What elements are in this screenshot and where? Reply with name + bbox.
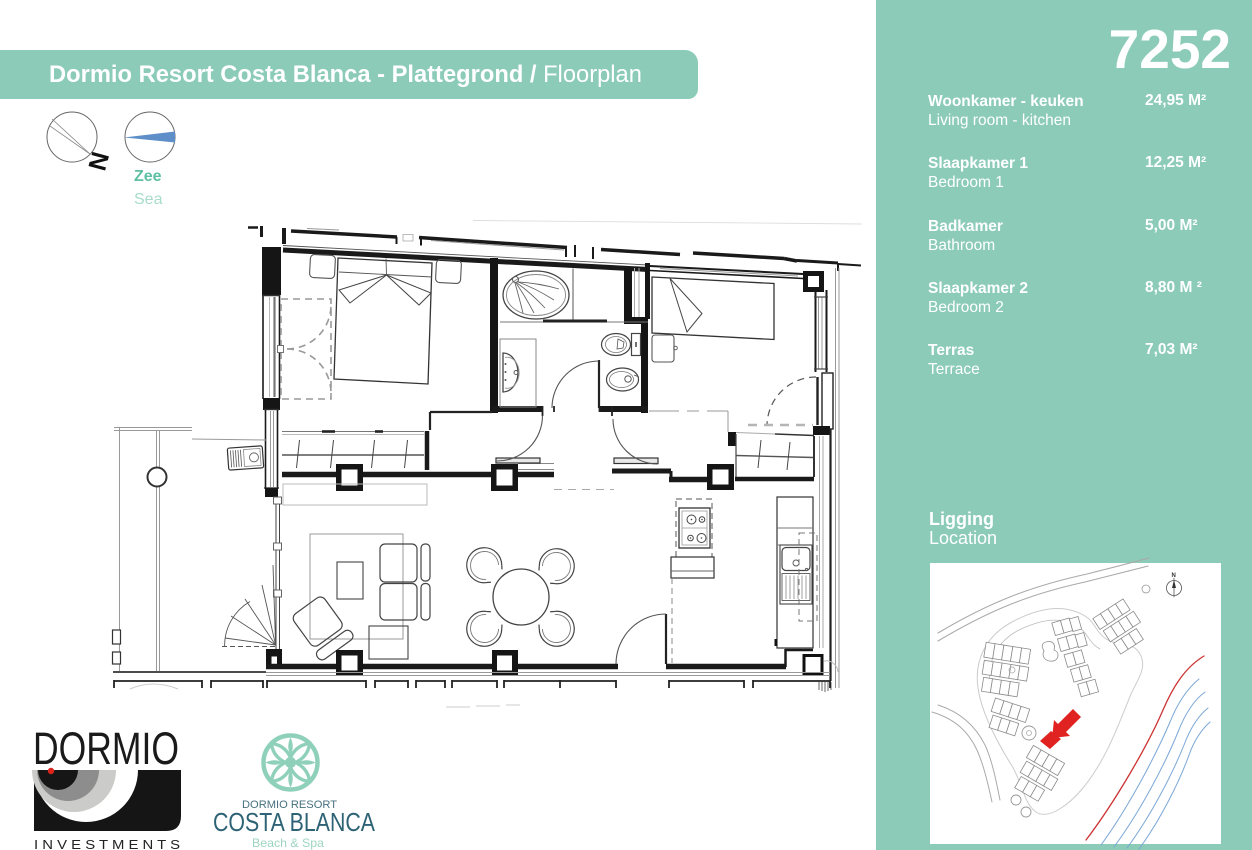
svg-text:COSTA BLANCA: COSTA BLANCA: [213, 807, 376, 837]
svg-text:DORMIO: DORMIO: [33, 723, 179, 774]
svg-text:N: N: [1172, 573, 1176, 579]
svg-text:I N V E S T M E N T S: I N V E S T M E N T S: [34, 837, 180, 850]
svg-text:N: N: [82, 149, 114, 174]
svg-text:Beach & Spa: Beach & Spa: [252, 836, 324, 850]
